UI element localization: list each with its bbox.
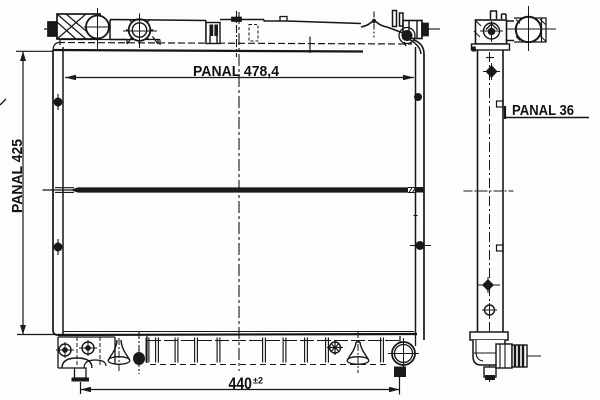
svg-text:±2: ±2 (253, 376, 263, 386)
svg-text:440: 440 (229, 375, 253, 393)
svg-text:PANAL 36: PANAL 36 (512, 102, 574, 119)
svg-text:PANAL 478,4: PANAL 478,4 (193, 63, 280, 80)
svg-text:PANAL 425: PANAL 425 (9, 139, 26, 213)
